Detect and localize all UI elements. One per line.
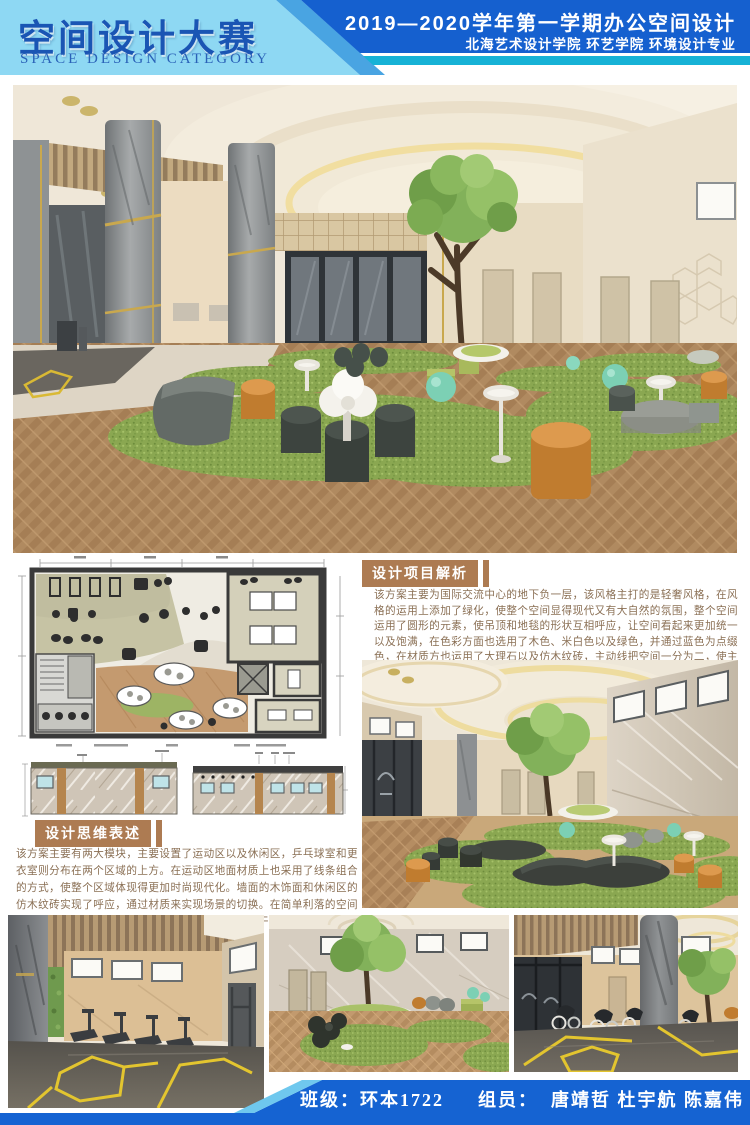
poster-subtitle: SPACE DESIGN CATEGORY [20, 51, 270, 68]
footer-class-label: 班级： [300, 1090, 360, 1110]
analysis-title-text: 设计项目解析 [362, 560, 478, 587]
header-session-line: 2019—2020学年第一学期办公空间设计 [345, 7, 736, 36]
footer-members-label: 组员： [478, 1090, 538, 1110]
header-banner: 空间设计大赛 SPACE DESIGN CATEGORY 2019—2020学年… [0, 0, 750, 75]
thinking-title-text: 设计思维表述 [35, 820, 151, 847]
footer-class: 班级：环本1722 [300, 1086, 444, 1112]
design-competition-poster: 空间设计大赛 SPACE DESIGN CATEGORY 2019—2020学年… [0, 0, 750, 1125]
footer-members: 组员： 唐靖哲 杜宇航 陈嘉伟 伍毅 [478, 1086, 750, 1112]
footer-members-names: 唐靖哲 杜宇航 陈嘉伟 伍毅 [551, 1090, 750, 1110]
main-lobby-render [13, 85, 737, 553]
section-title-thinking: 设计思维表述 [35, 820, 162, 847]
floor-plan-drawing [16, 556, 346, 754]
section-title-analysis: 设计项目解析 [362, 560, 489, 587]
wall-elevation-drawings [15, 750, 349, 822]
tree-lounge-render [269, 915, 509, 1072]
gym-spin-bike-render [514, 915, 738, 1072]
thinking-title-accent-bar [156, 820, 162, 847]
secondary-lounge-render [362, 660, 738, 908]
header-school-line: 北海艺术设计学院 环艺学院 环境设计专业 [465, 33, 736, 53]
analysis-title-accent-bar [483, 560, 489, 587]
footer-class-value: 环本1722 [360, 1090, 444, 1110]
